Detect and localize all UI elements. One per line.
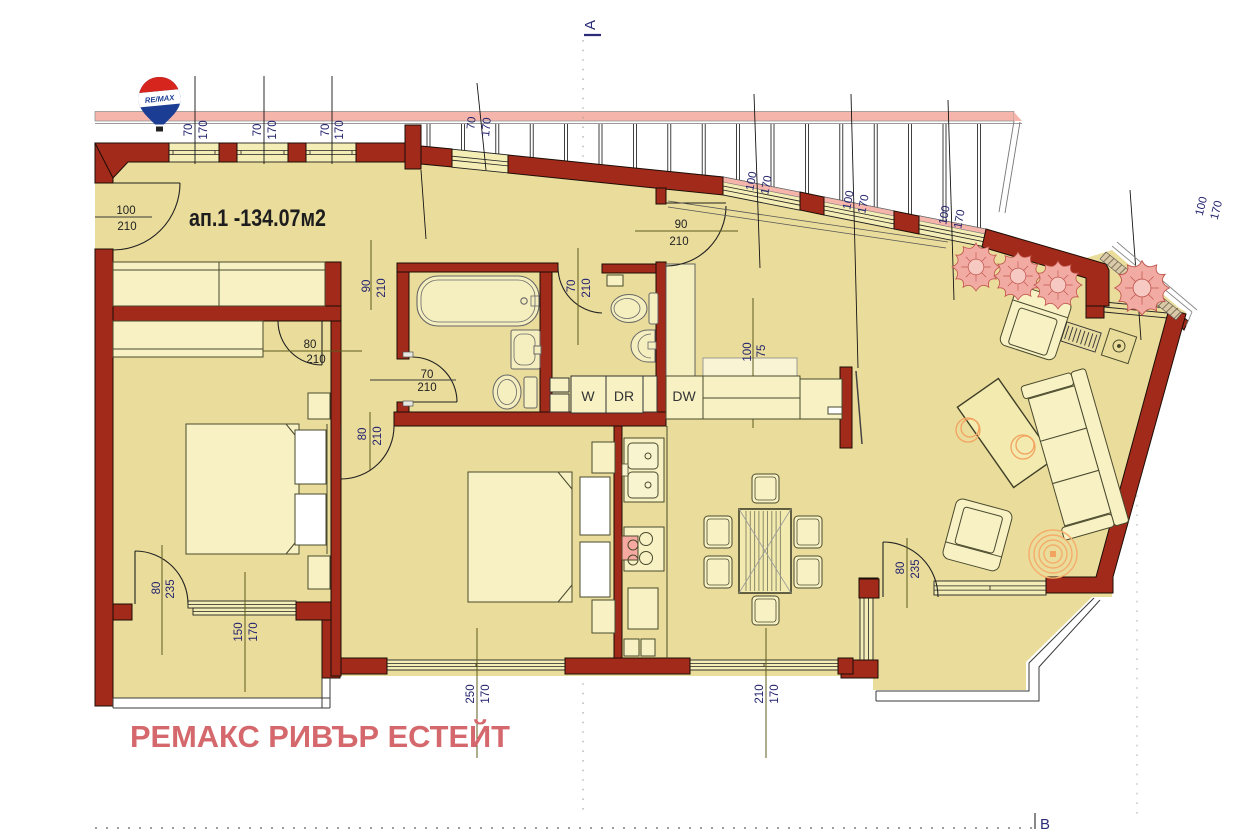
svg-text:170: 170 <box>267 120 279 139</box>
svg-text:90: 90 <box>675 219 688 231</box>
svg-text:235: 235 <box>165 579 177 598</box>
svg-text:70: 70 <box>465 116 478 130</box>
svg-text:170: 170 <box>480 117 494 137</box>
svg-text:80: 80 <box>151 582 163 595</box>
svg-text:210: 210 <box>306 354 325 366</box>
svg-text:170: 170 <box>248 622 260 641</box>
svg-text:80: 80 <box>357 428 369 441</box>
svg-text:ап.1 -134.07м2: ап.1 -134.07м2 <box>189 205 326 232</box>
svg-text:70: 70 <box>320 124 332 137</box>
svg-text:210: 210 <box>417 382 436 394</box>
svg-text:70: 70 <box>421 369 434 381</box>
svg-text:В: В <box>1040 816 1050 833</box>
svg-text:210: 210 <box>376 278 388 297</box>
svg-text:90: 90 <box>361 280 373 293</box>
svg-text:DW: DW <box>672 388 696 404</box>
svg-text:70: 70 <box>252 124 264 137</box>
svg-text:210: 210 <box>117 221 136 233</box>
svg-text:РЕМАКС РИВЪР ЕСТЕЙТ: РЕМАКС РИВЪР ЕСТЕЙТ <box>130 718 510 754</box>
svg-text:235: 235 <box>910 559 922 578</box>
svg-text:170: 170 <box>334 120 346 139</box>
svg-text:100: 100 <box>742 342 754 361</box>
svg-text:170: 170 <box>198 120 210 139</box>
svg-text:А: А <box>582 20 599 30</box>
svg-text:80: 80 <box>895 562 907 575</box>
svg-text:70: 70 <box>566 280 578 293</box>
svg-text:DR: DR <box>614 388 634 404</box>
svg-text:210: 210 <box>669 236 688 248</box>
svg-text:70: 70 <box>183 124 195 137</box>
svg-text:75: 75 <box>756 345 768 358</box>
svg-text:150: 150 <box>233 622 245 641</box>
svg-text:210: 210 <box>372 426 384 445</box>
svg-text:210: 210 <box>581 278 593 297</box>
svg-text:170: 170 <box>480 684 492 703</box>
svg-text:210: 210 <box>754 684 766 703</box>
svg-text:100: 100 <box>116 205 135 217</box>
svg-text:80: 80 <box>304 339 317 351</box>
svg-text:250: 250 <box>465 684 477 703</box>
svg-text:W: W <box>581 388 595 404</box>
svg-text:170: 170 <box>769 684 781 703</box>
